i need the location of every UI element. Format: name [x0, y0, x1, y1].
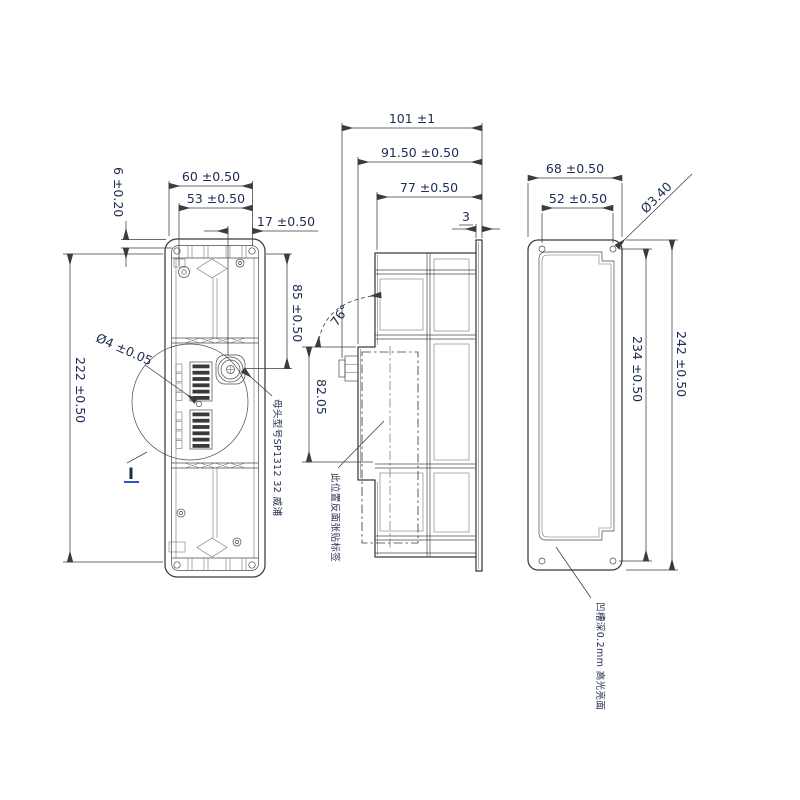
band-cross-pattern [185, 259, 245, 557]
detail-view-label: I [128, 464, 134, 483]
dim-back-hole-spacing-width: 52 ±0.50 [549, 191, 607, 206]
dim-side-flange-thickness: 3 [462, 209, 470, 224]
dim-front-connector-offset: 17 ±0.50 [257, 214, 315, 229]
connector-side-profile [339, 356, 358, 381]
dim-front-edge-offset: 6 ±0.20 [111, 167, 126, 217]
dim-side-body-depth: 91.50 ±0.50 [381, 145, 459, 160]
mount-hole [539, 246, 545, 252]
dip-switch-block-bottom [176, 410, 212, 449]
flange-plate [476, 240, 482, 571]
dim-back-hole-spacing-height: 234 ±0.50 [630, 336, 645, 402]
screw-bosses [177, 259, 244, 546]
mount-hole [610, 246, 616, 252]
drawing-sheet: I Ø4 ±0.05 母头型号SP1312 32 威浦 [0, 0, 800, 800]
note-connector-model: 母头型号SP1312 32 威浦 [271, 399, 283, 517]
dim-front-hole-diameter: Ø4 ±0.05 [94, 330, 155, 368]
mount-hole [610, 558, 616, 564]
dim-front-connector-depth: 85 ±0.50 [290, 284, 305, 342]
back-dim-lines [528, 174, 692, 598]
dim-side-window-height: 82.05 [314, 379, 329, 415]
groove-outline [539, 252, 614, 540]
dim-front-height: 222 ±0.50 [73, 357, 88, 423]
front-view: I Ø4 ±0.05 母头型号SP1312 32 威浦 [63, 167, 318, 577]
corner-hole [249, 562, 255, 568]
dip-switch-block-top [176, 362, 212, 401]
side-view: 76° 101 ±1 91.50 ±0.50 77 ±0.50 3 82.05 … [302, 111, 500, 571]
dim-back-height: 242 ±0.50 [674, 331, 689, 397]
back-view: 68 ±0.50 52 ±0.50 Ø3.40 242 ±0.50 234 ±0… [528, 161, 692, 710]
mount-hole [539, 558, 545, 564]
side-dim-lines [302, 123, 500, 462]
dim-front-width-mid: 53 ±0.50 [187, 191, 245, 206]
dim-side-inner-depth: 77 ±0.50 [400, 180, 458, 195]
engineering-drawing: I Ø4 ±0.05 母头型号SP1312 32 威浦 [0, 0, 800, 800]
dim-back-width: 68 ±0.50 [546, 161, 604, 176]
dim-side-tilt-angle: 76° [327, 302, 352, 329]
corner-hole [174, 562, 180, 568]
circular-connector [216, 355, 245, 384]
corner-hole [249, 248, 255, 254]
dim-side-total-depth: 101 ±1 [389, 111, 435, 126]
small-hole [196, 401, 201, 406]
dim-front-width-top: 60 ±0.50 [182, 169, 240, 184]
dim-back-hole-diameter: Ø3.40 [638, 179, 675, 216]
body-profile [358, 253, 476, 557]
note-label-position: 此位置反面张贴标签 [329, 473, 341, 562]
rib-bands [172, 338, 259, 468]
note-groove-finish: 凹槽深0.2mm 高光亮面 [594, 602, 606, 710]
